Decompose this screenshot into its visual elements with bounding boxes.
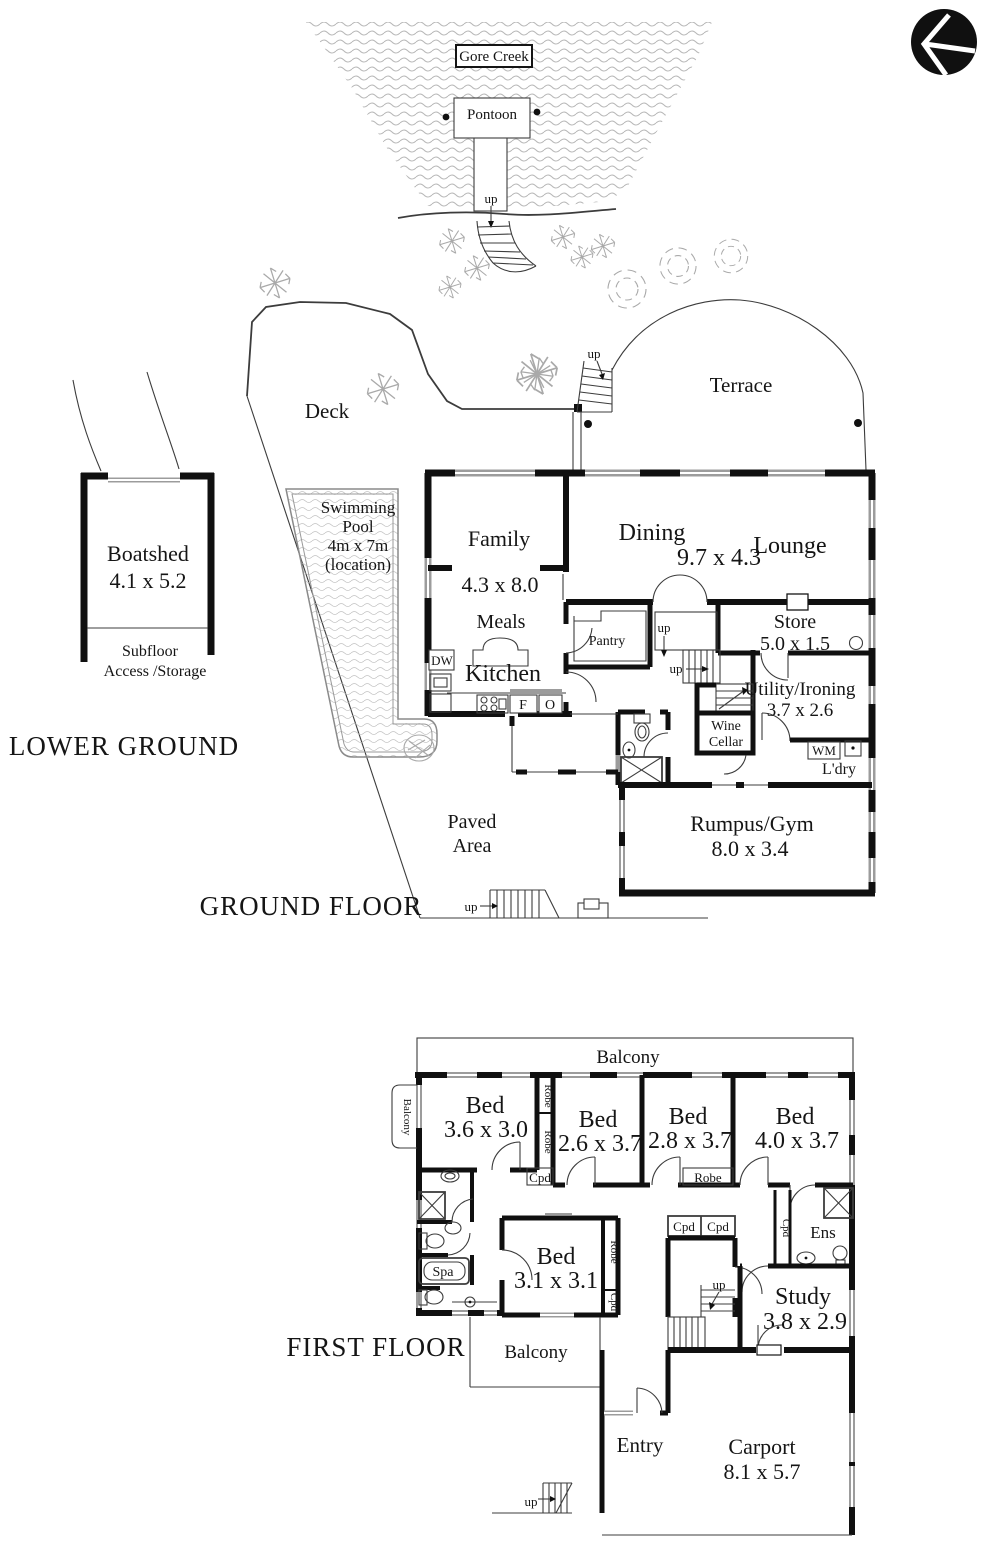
cpd-label2: Cpd [673,1219,695,1234]
meals-label: Meals [477,611,526,633]
rumpus-dims: 8.0 x 3.4 [712,836,789,861]
utility-label: Utility/Ironing [745,679,856,700]
mooring-dot [534,109,541,116]
lounge-label: Lounge [753,533,826,559]
rumpus-label: Rumpus/Gym [690,811,813,836]
swimming-pool: Swimming Pool 4m x 7m (location) [286,489,437,757]
terrace-label: Terrace [710,373,773,397]
up-label-stairs1: up [658,620,671,635]
garden-plants [260,225,748,404]
wine-cellar-label2: Cellar [709,735,744,750]
toilet-bowl [426,1234,444,1248]
first-floor-plan: Balcony Balcony [286,1038,855,1535]
floor-plan-image: Pontoon Gore Creek up [0,0,1000,1549]
bed1-label: Bed [466,1093,505,1119]
cpd-label-v2: Cpd [608,1293,620,1312]
boatshed-dims: 4.1 x 5.2 [110,568,187,593]
entry-stairs: up [492,1483,572,1513]
family-dims: 4.3 x 8.0 [462,572,539,597]
robe-label-v1: Robe [542,1084,554,1107]
grill-strip [510,689,562,694]
pool-label4: (location) [325,555,391,574]
fireplace [787,594,808,610]
up-label-entry-stairs: up [525,1494,538,1509]
study-dims: 3.8 x 2.9 [763,1309,847,1335]
cpd-label3: Cpd [707,1219,729,1234]
toilet-tank [634,714,650,723]
boatshed-path [73,380,101,471]
terrace-stairs: up [577,346,612,412]
pool-label3: 4m x 7m [328,536,388,555]
balcony-left-label: Balcony [401,1099,413,1136]
pool-label1: Swimming [321,498,396,517]
creek-label: Gore Creek [459,49,529,65]
pontoon-label: Pontoon [467,107,518,123]
mooring-dot [443,114,450,121]
subfloor-label: Subfloor [122,643,179,660]
hot-water-icon [850,637,863,650]
post-dot [854,419,862,427]
bed3-label: Bed [669,1104,708,1130]
deck-label: Deck [305,399,350,423]
ens-label: Ens [810,1223,836,1242]
utility-dims: 3.7 x 2.6 [767,700,834,721]
ground-floor-title: GROUND FLOOR [200,891,423,921]
washing-machine-label: WM [812,743,836,758]
up-label-stairs2: up [670,661,683,676]
wine-cellar-label1: Wine [711,719,741,734]
balcony-bottom-label: Balcony [504,1342,568,1363]
creek-stairs [477,221,536,272]
deck-outline [247,302,578,409]
subfloor-label2: Access /Storage [104,663,207,680]
boatshed-label: Boatshed [107,541,189,566]
bed5-dims: 3.1 x 3.1 [514,1268,598,1294]
laundry-label: L'dry [822,761,856,778]
up-label-stairs3: up [713,1277,726,1292]
balcony-top-label: Balcony [596,1047,660,1068]
pool-label2: Pool [342,517,373,536]
carport-dims: 8.1 x 5.7 [724,1459,801,1484]
north-compass-icon [911,9,977,75]
robe-label-box: Robe [694,1170,722,1185]
up-label-ground-stairs: up [465,899,478,914]
dishwasher-label: DW [431,653,453,668]
pantry-label: Pantry [589,634,626,649]
store-label: Store [774,611,816,633]
cpd-label-v3: Cpd [780,1219,792,1238]
entry-label: Entry [617,1433,664,1457]
meter-box-inner [584,899,599,909]
floor-plan-svg: Pontoon Gore Creek up [0,0,1000,1549]
bed1-dims: 3.6 x 3.0 [444,1117,528,1143]
robe-label-v3: Robe [608,1240,620,1263]
family-label: Family [468,526,530,551]
kitchen-cabinet [430,694,451,712]
bed2-label: Bed [579,1107,618,1133]
toilet-bowl [425,1290,443,1304]
bed3-dims: 2.8 x 3.7 [648,1128,732,1154]
cpd-label1: Cpd [529,1170,551,1185]
oven-label: O [545,698,555,713]
bed5-label: Bed [537,1244,576,1270]
carport-wall-box [757,1345,781,1355]
dining-dims: 9.7 x 4.3 [677,545,761,571]
first-floor-title: FIRST FLOOR [286,1332,465,1362]
ground-exterior-stairs: up [465,890,609,918]
fridge-label: F [519,698,527,713]
basin [445,1222,461,1234]
paved-area-label1: Paved [448,811,497,833]
paved-area-label2: Area [453,835,492,857]
robe-label-v2: Robe [542,1130,554,1153]
lower-ground-plan: Boatshed 4.1 x 5.2 Subfloor Access /Stor… [9,372,239,761]
boatshed-path [147,372,179,469]
creek-area: Pontoon Gore Creek up [306,22,712,272]
carport-label: Carport [728,1434,795,1459]
kitchen-cabinet [430,674,451,691]
up-label-pier: up [485,191,498,206]
lower-ground-title: LOWER GROUND [9,731,239,761]
post-dot [584,420,592,428]
study-label: Study [775,1284,831,1310]
bed4-dims: 4.0 x 3.7 [755,1128,839,1154]
dining-label: Dining [619,520,686,546]
pedestal-basin [833,1246,847,1260]
up-label-terrace: up [588,346,601,361]
bed2-dims: 2.6 x 3.7 [558,1131,642,1157]
spa-label: Spa [433,1265,455,1280]
bed4-label: Bed [776,1104,815,1130]
store-dims: 5.0 x 1.5 [760,633,830,655]
kitchen-label: Kitchen [465,661,541,687]
